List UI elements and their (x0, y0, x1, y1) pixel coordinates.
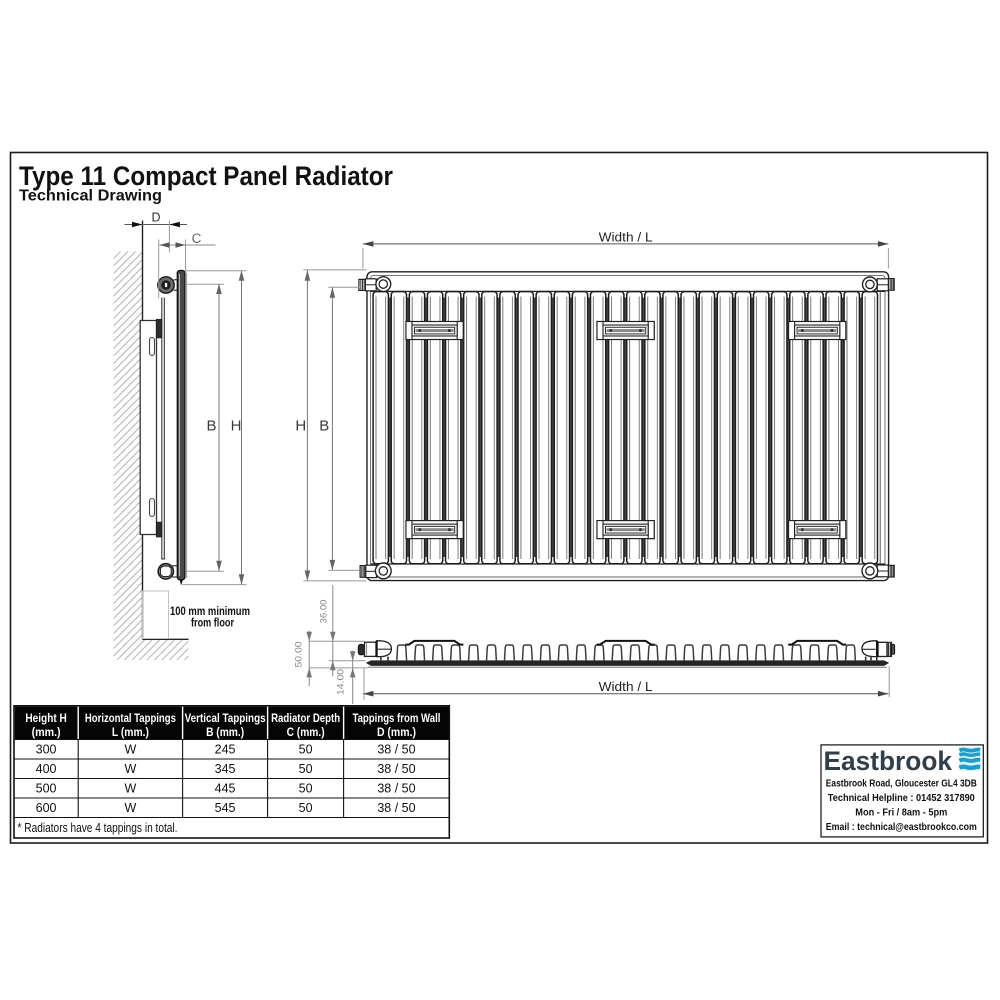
svg-text:Vertical Tappings: Vertical Tappings (185, 711, 266, 725)
svg-text:C: C (192, 231, 202, 246)
svg-text:38 / 50: 38 / 50 (377, 743, 415, 757)
svg-text:50: 50 (299, 762, 313, 776)
svg-text:W: W (124, 743, 136, 757)
svg-text:D (mm.): D (mm.) (377, 725, 416, 739)
svg-text:545: 545 (215, 801, 236, 815)
svg-text:Horizontal Tappings: Horizontal Tappings (85, 711, 176, 725)
svg-text:50.00: 50.00 (294, 642, 305, 668)
svg-text:from floor: from floor (191, 618, 234, 630)
svg-text:(mm.): (mm.) (32, 725, 61, 739)
svg-text:500: 500 (36, 782, 57, 796)
svg-text:Mon - Fri / 8am - 5pm: Mon - Fri / 8am - 5pm (855, 808, 947, 819)
svg-text:445: 445 (215, 782, 236, 796)
svg-text:B (mm.): B (mm.) (206, 725, 244, 739)
svg-text:W: W (124, 801, 136, 815)
svg-text:345: 345 (215, 762, 236, 776)
svg-text:38 / 50: 38 / 50 (377, 801, 415, 815)
svg-text:Eastbrook: Eastbrook (824, 746, 953, 776)
svg-text:Width / L: Width / L (599, 229, 653, 244)
svg-text:38 / 50: 38 / 50 (377, 782, 415, 796)
svg-text:D: D (151, 211, 160, 225)
svg-text:W: W (124, 782, 136, 796)
svg-text:Width / L: Width / L (599, 679, 653, 694)
svg-text:14.00: 14.00 (336, 669, 347, 695)
svg-text:38 / 50: 38 / 50 (377, 762, 415, 776)
svg-text:H: H (295, 418, 306, 435)
svg-text:Height H: Height H (25, 711, 67, 725)
svg-text:W: W (124, 762, 136, 776)
svg-text:* Radiators have 4 tappings in: * Radiators have 4 tappings in total. (18, 821, 178, 835)
svg-text:Email : technical@eastbrookco.: Email : technical@eastbrookco.com (826, 822, 977, 833)
svg-text:400: 400 (36, 762, 57, 776)
svg-text:Technical Drawing: Technical Drawing (19, 187, 162, 204)
svg-text:B: B (319, 418, 329, 435)
svg-text:50: 50 (299, 782, 313, 796)
svg-text:Technical Helpline : 01452 317: Technical Helpline : 01452 317890 (828, 793, 975, 804)
svg-text:Radiator Depth: Radiator Depth (271, 711, 340, 725)
svg-text:50: 50 (299, 801, 313, 815)
svg-text:245: 245 (215, 743, 236, 757)
svg-text:50: 50 (299, 743, 313, 757)
svg-text:300: 300 (36, 743, 57, 757)
svg-text:Tappings from Wall: Tappings from Wall (352, 711, 440, 725)
svg-text:B: B (206, 418, 216, 435)
svg-text:L (mm.): L (mm.) (112, 725, 149, 739)
svg-text:600: 600 (36, 801, 57, 815)
svg-text:36.00: 36.00 (319, 600, 330, 624)
svg-text:Eastbrook Road, Gloucester GL4: Eastbrook Road, Gloucester GL4 3DB (826, 778, 977, 789)
svg-text:C (mm.): C (mm.) (287, 725, 325, 739)
svg-text:H: H (231, 418, 242, 435)
svg-text:100 mm minimum: 100 mm minimum (170, 606, 250, 618)
